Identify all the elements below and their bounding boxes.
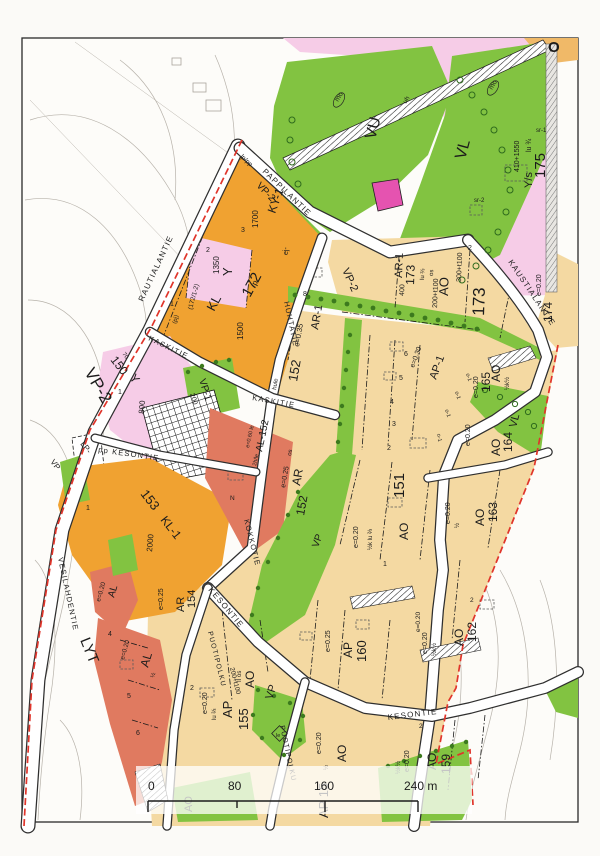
label-block-164: 164 [501,432,515,452]
label-block-174: 174 [541,302,555,322]
scale-bar: 0 80 160 240 m [136,766,472,814]
label-ar-154: AR [175,597,187,612]
label-2000: 2000 [145,533,156,552]
label-lu23-a: lu ⅔ [420,269,426,281]
label-ao-151: AO [397,523,411,540]
plot-4b: 4 [108,631,112,638]
plot-8: 8 [303,291,307,298]
label-block-151: 151 [391,473,408,498]
label-halfk-165: ½k½ [504,377,511,390]
label-e020-155: e=0.20 [202,692,209,714]
label-ys: Y/s [523,172,535,188]
scale-tick-160: 160 [314,779,334,793]
plot-1c: 1 [383,561,387,568]
label-e020-165: e=0.20 [473,376,480,398]
label-200t-a: 200+t100 [432,278,440,308]
map-sheet: VU VL mo mo 175 Y/s 410+1550 lu ¾ sr-1 s… [0,0,600,856]
plot-1d: 1 [86,505,90,512]
label-e020-ne: e=0.20 [415,612,422,632]
label-ao-south: AO [335,745,349,762]
label-block-162: 162 [465,622,479,642]
label-sr1: sr-1 [536,128,547,134]
label-e020-174: e=0.20 [536,274,543,296]
label-410-1550: 410+1550 [514,141,521,172]
label-e025-154: e=0.25 [158,588,165,610]
label-ar-152: AR [289,467,306,486]
label-400: 400 [399,284,406,296]
plot-4: 4 [390,399,394,406]
label-halfk-162: ½k½ [431,643,438,656]
label-block-173a: 173 [403,264,418,285]
label-ao-162: AO [452,629,466,646]
zoning-map: VU VL mo mo 175 Y/s 410+1550 lu ¾ sr-1 s… [0,0,600,856]
label-half-163: ½ [454,523,461,528]
label-lu34: lu ¾ [526,139,533,152]
label-e020-162: e=0.20 [422,632,429,654]
label-halflu: ½k lu ⅔ [367,529,374,550]
label-e020-south: e=0.20 [316,732,323,754]
label-os-a: os [429,270,435,277]
label-block-165: 165 [479,372,493,392]
label-e020-164: e=0.20 [465,424,472,446]
label-ap-155: AP [220,701,235,718]
label-e020-163: e=0.20 [445,502,452,524]
label-800: 800 [137,400,147,415]
label-block-160: 160 [354,640,369,662]
label-block-155: 155 [236,708,251,730]
plot-3b: 3 [392,421,396,428]
plot-1a: 1 [170,301,174,308]
zone-et-magenta [372,179,403,211]
plot-1b: 1 [118,389,122,396]
label-block-173-big: 173 [469,287,489,316]
label-os-b: os [287,449,294,456]
scale-tick-240: 240 m [404,779,437,793]
label-le: le [276,733,280,739]
label-ap-160: AP [341,642,355,658]
label-ao-155: AO [243,671,257,688]
plot-3: 3 [241,227,245,234]
label-e020-151: e=0.20 [353,526,360,548]
scale-tick-0: 0 [148,779,155,793]
label-sr2: sr-2 [474,198,485,204]
label-iios: II os [237,671,243,682]
plot-5: 5 [399,375,403,382]
plot-6: 6 [404,351,408,358]
label-block-163: 163 [486,502,500,522]
plot-2e: 2 [470,597,474,604]
label-lu23-b: lu ⅔ [212,709,218,720]
label-e025-160: e=0.25 [325,630,332,652]
label-1500: 1500 [236,322,245,340]
label-1350: 1350 [212,256,221,274]
plot-2f: 2 [419,723,423,730]
plot-2c: 2 [387,445,391,452]
label-ao-164: AO [489,439,503,456]
label-ao-163: AO [473,509,487,526]
plot-6b: 6 [136,730,140,737]
plot-5b: 5 [127,693,131,700]
label-300t: 300+t100 [456,252,464,282]
plot-2a: 2 [206,247,210,254]
label-corner-o: O [548,39,560,56]
plot-2d: 2 [190,685,194,692]
label-y-pink: Y [220,267,235,276]
label-n-mark: N [230,495,235,502]
scale-tick-80: 80 [228,779,242,793]
plot-2b: 2 [468,245,472,252]
label-ej: ej- [283,247,290,255]
label-block-154: 154 [186,590,198,608]
label-1700: 1700 [251,210,260,228]
